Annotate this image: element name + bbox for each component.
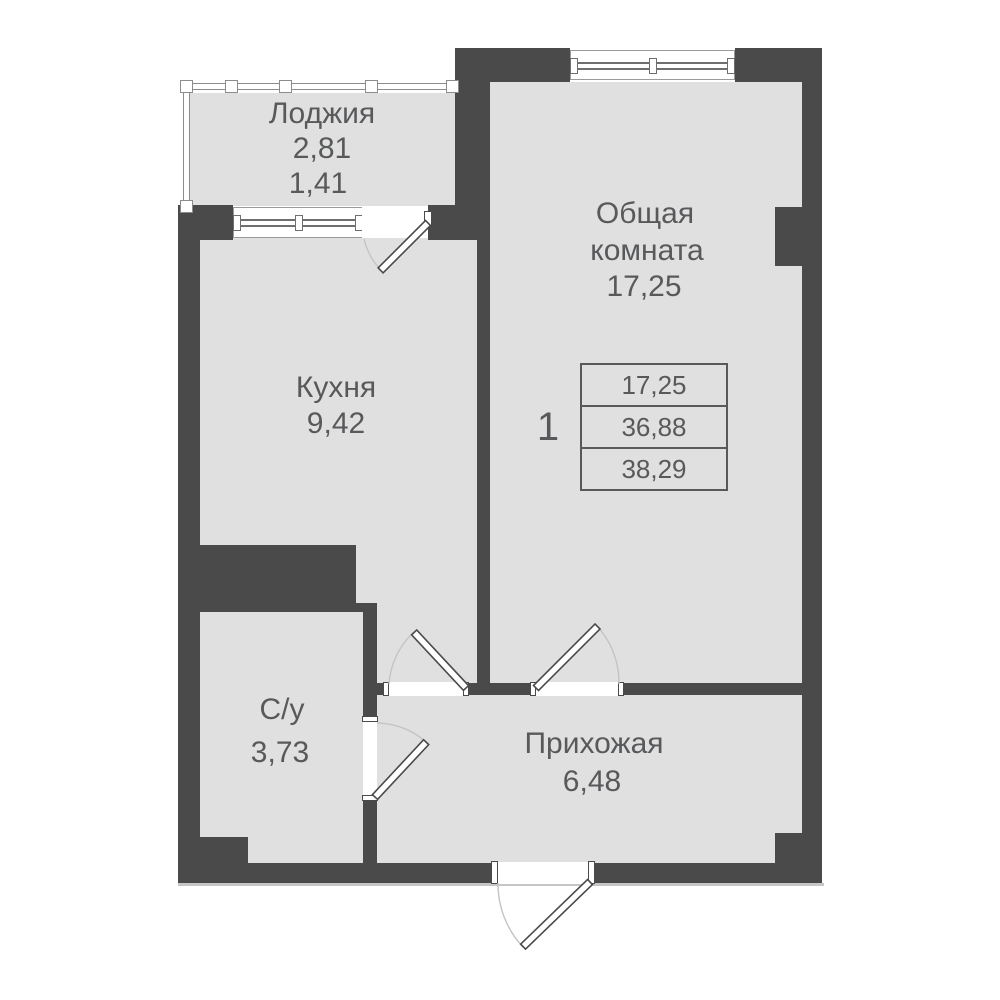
- wall-bathroom-right-upper: [363, 612, 377, 722]
- door-jamb: [424, 211, 432, 226]
- loggia-railing-left: [183, 90, 190, 207]
- door-opening-living-hallway: [535, 682, 620, 696]
- floor-plan: Лоджия 2,81 1,41 Кухня 9,42 Общая комнат…: [0, 0, 1000, 1000]
- railing-post: [365, 80, 378, 93]
- window-mullion: [727, 58, 735, 74]
- label-kitchen-area: 9,42: [307, 409, 365, 439]
- wall-hallway-top-right: [620, 683, 802, 695]
- label-loggia-area-secondary: 1,41: [289, 169, 347, 199]
- door-jamb: [362, 795, 378, 801]
- wall-living-pilaster: [775, 207, 802, 266]
- door-opening-entrance: [496, 862, 590, 884]
- window-loggia-kitchen: [233, 207, 363, 238]
- wall-left-outer: [178, 205, 200, 883]
- label-living-room-name-line1: Общая: [596, 199, 694, 229]
- label-loggia-name: Лоджия: [269, 99, 375, 129]
- door-jamb: [588, 861, 595, 884]
- label-kitchen-name: Кухня: [296, 373, 376, 403]
- door-leaf-entrance: [521, 879, 593, 949]
- label-living-room-name-line2: комната: [590, 236, 703, 266]
- wall-loggia-band-right: [428, 205, 455, 240]
- wall-bathroom-right-step: [356, 603, 377, 612]
- wall-bottom-left: [178, 863, 496, 883]
- door-opening-bathroom: [363, 721, 377, 798]
- railing-post: [279, 80, 292, 93]
- label-bathroom-area: 3,73: [251, 738, 309, 768]
- door-jamb: [463, 682, 469, 696]
- summary-living-area: 17,25: [582, 365, 726, 405]
- summary-floor-area: 36,88: [582, 405, 726, 447]
- wall-bottom-right: [591, 863, 822, 883]
- label-hallway-name: Прихожая: [524, 729, 663, 759]
- railing-post: [180, 80, 193, 93]
- window-mullion: [649, 58, 657, 74]
- door-jamb: [362, 716, 378, 722]
- window-mullion: [233, 215, 241, 231]
- door-opening-kitchen-hallway: [388, 682, 465, 696]
- area-summary-table: 17,25 36,88 38,29: [580, 363, 728, 491]
- window-living-room: [570, 50, 735, 80]
- wall-kitchen-bathroom: [200, 545, 356, 612]
- door-jamb: [383, 682, 389, 696]
- door-jamb: [491, 861, 498, 884]
- wall-hallway-notch: [775, 833, 802, 863]
- unit-number: 1: [537, 407, 559, 447]
- wall-kitchen-living-divider: [477, 82, 490, 683]
- railing-post: [180, 200, 193, 213]
- label-living-room-area: 17,25: [606, 272, 681, 302]
- door-jamb: [618, 682, 624, 696]
- railing-post: [446, 80, 459, 93]
- wall-bathroom-notch: [198, 837, 248, 863]
- railing-post: [225, 80, 238, 93]
- wall-hallway-top-middle: [465, 683, 535, 695]
- label-bathroom-name: С/у: [260, 695, 305, 725]
- wall-right-outer: [802, 48, 822, 883]
- door-opening-balcony: [362, 207, 428, 238]
- window-mullion: [570, 58, 578, 74]
- door-jamb: [530, 682, 536, 696]
- summary-total-area: 38,29: [582, 447, 726, 489]
- label-hallway-area: 6,48: [563, 767, 621, 797]
- door-arc-entrance: [498, 883, 523, 947]
- label-loggia-area: 2,81: [293, 134, 351, 164]
- wall-bathroom-right-lower: [363, 797, 377, 863]
- window-mullion: [295, 215, 303, 231]
